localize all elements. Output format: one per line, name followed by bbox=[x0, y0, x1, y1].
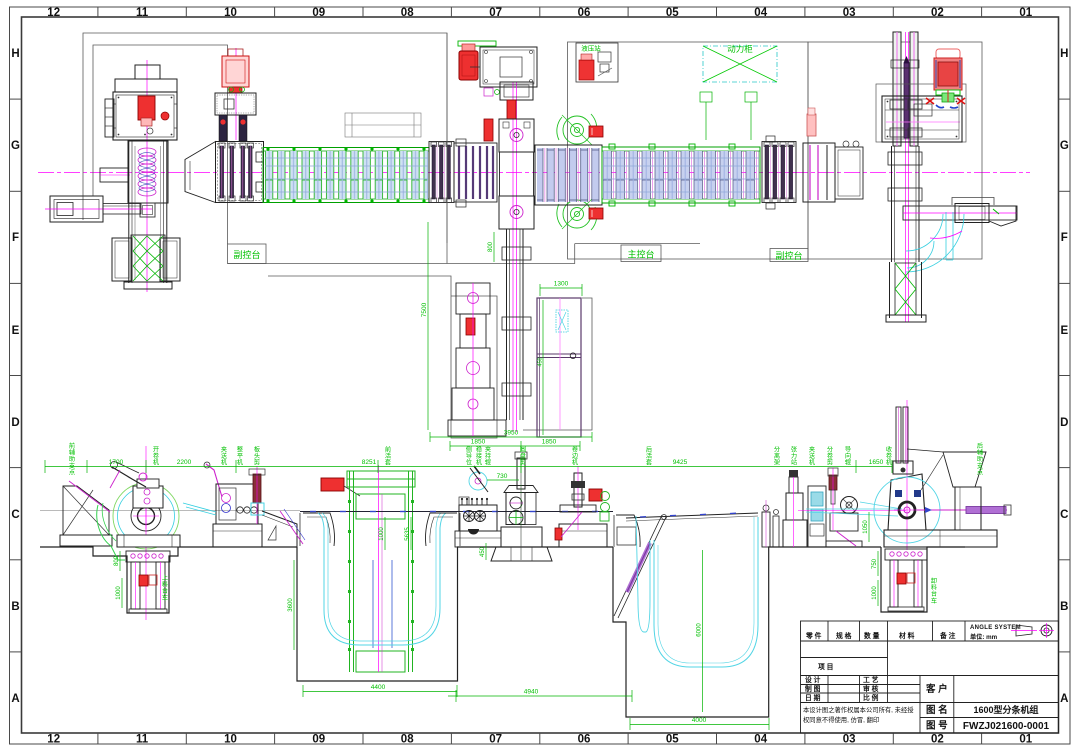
svg-text:B: B bbox=[11, 601, 19, 613]
svg-text:图 号: 图 号 bbox=[926, 721, 948, 732]
svg-text:分卷剪: 分卷剪 bbox=[827, 446, 834, 467]
svg-text:12: 12 bbox=[47, 734, 60, 746]
svg-text:07: 07 bbox=[489, 734, 502, 746]
svg-text:2200: 2200 bbox=[177, 459, 192, 466]
svg-text:材 料: 材 料 bbox=[899, 631, 915, 640]
svg-text:03: 03 bbox=[843, 734, 856, 746]
svg-text:1300: 1300 bbox=[554, 281, 569, 288]
svg-text:11: 11 bbox=[136, 7, 149, 19]
svg-text:开卷机: 开卷机 bbox=[153, 447, 160, 467]
svg-text:B: B bbox=[1060, 601, 1068, 613]
svg-text:侧导位: 侧导位 bbox=[466, 446, 472, 467]
svg-text:01: 01 bbox=[1019, 7, 1032, 19]
svg-text:08: 08 bbox=[401, 734, 414, 746]
svg-text:D: D bbox=[11, 417, 19, 429]
svg-text:800: 800 bbox=[488, 241, 494, 252]
svg-text:稳接机: 稳接机 bbox=[476, 446, 483, 467]
svg-text:6000: 6000 bbox=[697, 623, 703, 637]
svg-text:单位: mm: 单位: mm bbox=[970, 633, 998, 641]
svg-text:09: 09 bbox=[312, 734, 325, 746]
svg-text:730: 730 bbox=[497, 473, 508, 480]
svg-text:设 计: 设 计 bbox=[805, 675, 821, 684]
svg-text:规 格: 规 格 bbox=[836, 631, 852, 640]
svg-text:备 注: 备 注 bbox=[939, 631, 956, 640]
svg-text:4400: 4400 bbox=[371, 684, 386, 691]
svg-text:1000: 1000 bbox=[872, 586, 878, 600]
svg-text:审 核: 审 核 bbox=[863, 684, 879, 693]
svg-text:A: A bbox=[1060, 693, 1068, 705]
svg-text:权同意不得使用, 仿冒, 翻印: 权同意不得使用, 仿冒, 翻印 bbox=[803, 715, 879, 724]
svg-text:主控台: 主控台 bbox=[627, 249, 654, 260]
svg-text:7500: 7500 bbox=[421, 302, 428, 317]
svg-text:项 目: 项 目 bbox=[818, 662, 833, 671]
svg-text:数 量: 数 量 bbox=[864, 631, 880, 640]
svg-text:02: 02 bbox=[931, 734, 944, 746]
svg-text:后辅助支点: 后辅助支点 bbox=[977, 442, 983, 476]
svg-text:06: 06 bbox=[578, 7, 591, 19]
svg-text:450: 450 bbox=[480, 546, 486, 557]
svg-text:E: E bbox=[12, 325, 20, 337]
svg-text:G: G bbox=[11, 140, 20, 152]
svg-text:08: 08 bbox=[401, 7, 414, 19]
svg-text:夹送机: 夹送机 bbox=[221, 446, 228, 467]
svg-text:4000: 4000 bbox=[692, 717, 707, 724]
svg-text:450: 450 bbox=[538, 357, 544, 366]
svg-text:750: 750 bbox=[872, 558, 878, 569]
svg-text:H: H bbox=[11, 48, 19, 60]
svg-text:制 图: 制 图 bbox=[805, 684, 821, 693]
svg-text:整平机: 整平机 bbox=[237, 446, 244, 467]
svg-text:1700: 1700 bbox=[109, 459, 124, 466]
svg-text:1000: 1000 bbox=[116, 586, 122, 600]
svg-text:板头剪: 板头剪 bbox=[254, 446, 260, 467]
svg-text:工 艺: 工 艺 bbox=[863, 675, 879, 684]
svg-text:10: 10 bbox=[224, 7, 237, 19]
svg-text:夹持辊: 夹持辊 bbox=[485, 446, 491, 467]
svg-text:1600型分条机组: 1600型分条机组 bbox=[973, 704, 1038, 715]
svg-text:10: 10 bbox=[224, 734, 237, 746]
svg-text:C: C bbox=[11, 509, 19, 521]
svg-text:1000: 1000 bbox=[379, 527, 385, 541]
svg-text:5635: 5635 bbox=[405, 527, 411, 541]
svg-text:比 例: 比 例 bbox=[863, 693, 879, 702]
svg-text:副控台: 副控台 bbox=[775, 250, 802, 261]
svg-text:1650: 1650 bbox=[869, 459, 884, 466]
svg-text:09: 09 bbox=[312, 7, 325, 19]
svg-text:1050: 1050 bbox=[863, 520, 869, 534]
svg-text:F: F bbox=[12, 232, 19, 244]
svg-text:卷边机: 卷边机 bbox=[572, 446, 579, 467]
svg-text:07: 07 bbox=[489, 7, 502, 19]
svg-text:图 名: 图 名 bbox=[926, 704, 948, 716]
svg-text:后活套: 后活套 bbox=[646, 446, 652, 467]
svg-text:02: 02 bbox=[931, 7, 944, 19]
svg-text:3600: 3600 bbox=[288, 598, 294, 612]
svg-text:D: D bbox=[1060, 417, 1068, 429]
svg-text:前活套: 前活套 bbox=[385, 446, 391, 467]
svg-text:05: 05 bbox=[666, 734, 679, 746]
svg-text:03: 03 bbox=[843, 7, 856, 19]
svg-text:夹送机: 夹送机 bbox=[809, 446, 816, 467]
svg-text:张力站: 张力站 bbox=[791, 446, 798, 467]
svg-text:11: 11 bbox=[136, 734, 149, 746]
svg-text:动力柜: 动力柜 bbox=[727, 44, 753, 54]
svg-text:前辅助支点: 前辅助支点 bbox=[69, 442, 75, 476]
svg-text:800: 800 bbox=[114, 555, 120, 566]
svg-text:8251: 8251 bbox=[362, 459, 377, 466]
svg-text:分离架: 分离架 bbox=[774, 446, 780, 467]
svg-text:F: F bbox=[1061, 232, 1068, 244]
svg-text:H: H bbox=[1060, 48, 1068, 60]
svg-text:1850: 1850 bbox=[471, 439, 486, 446]
svg-text:3950: 3950 bbox=[504, 430, 519, 437]
svg-text:零 件: 零 件 bbox=[805, 631, 822, 640]
svg-text:上料台车: 上料台车 bbox=[162, 574, 168, 602]
svg-text:客 户: 客 户 bbox=[925, 683, 948, 695]
svg-text:E: E bbox=[1060, 325, 1068, 337]
svg-text:ANGLE SYSTEM: ANGLE SYSTEM bbox=[970, 625, 1021, 631]
svg-text:副控台: 副控台 bbox=[233, 249, 260, 260]
svg-text:液压站: 液压站 bbox=[581, 44, 601, 53]
svg-text:12: 12 bbox=[47, 7, 60, 19]
svg-text:1850: 1850 bbox=[542, 439, 557, 446]
svg-text:卸料台车: 卸料台车 bbox=[931, 577, 937, 605]
svg-text:FWZJ021600-0001: FWZJ021600-0001 bbox=[963, 721, 1050, 732]
svg-text:04: 04 bbox=[754, 734, 767, 746]
svg-text:06: 06 bbox=[578, 734, 591, 746]
svg-text:A: A bbox=[11, 693, 19, 705]
svg-text:导向辊: 导向辊 bbox=[845, 447, 851, 467]
svg-text:01: 01 bbox=[1019, 734, 1032, 746]
svg-text:04: 04 bbox=[754, 7, 767, 19]
svg-text:本设计图之著作权属本公司所有, 未经授: 本设计图之著作权属本公司所有, 未经授 bbox=[803, 705, 914, 714]
svg-text:C: C bbox=[1060, 509, 1068, 521]
svg-text:日 期: 日 期 bbox=[805, 693, 821, 702]
svg-text:9425: 9425 bbox=[673, 459, 688, 466]
svg-text:05: 05 bbox=[666, 7, 679, 19]
svg-text:G: G bbox=[1060, 140, 1069, 152]
svg-text:4940: 4940 bbox=[524, 689, 539, 696]
